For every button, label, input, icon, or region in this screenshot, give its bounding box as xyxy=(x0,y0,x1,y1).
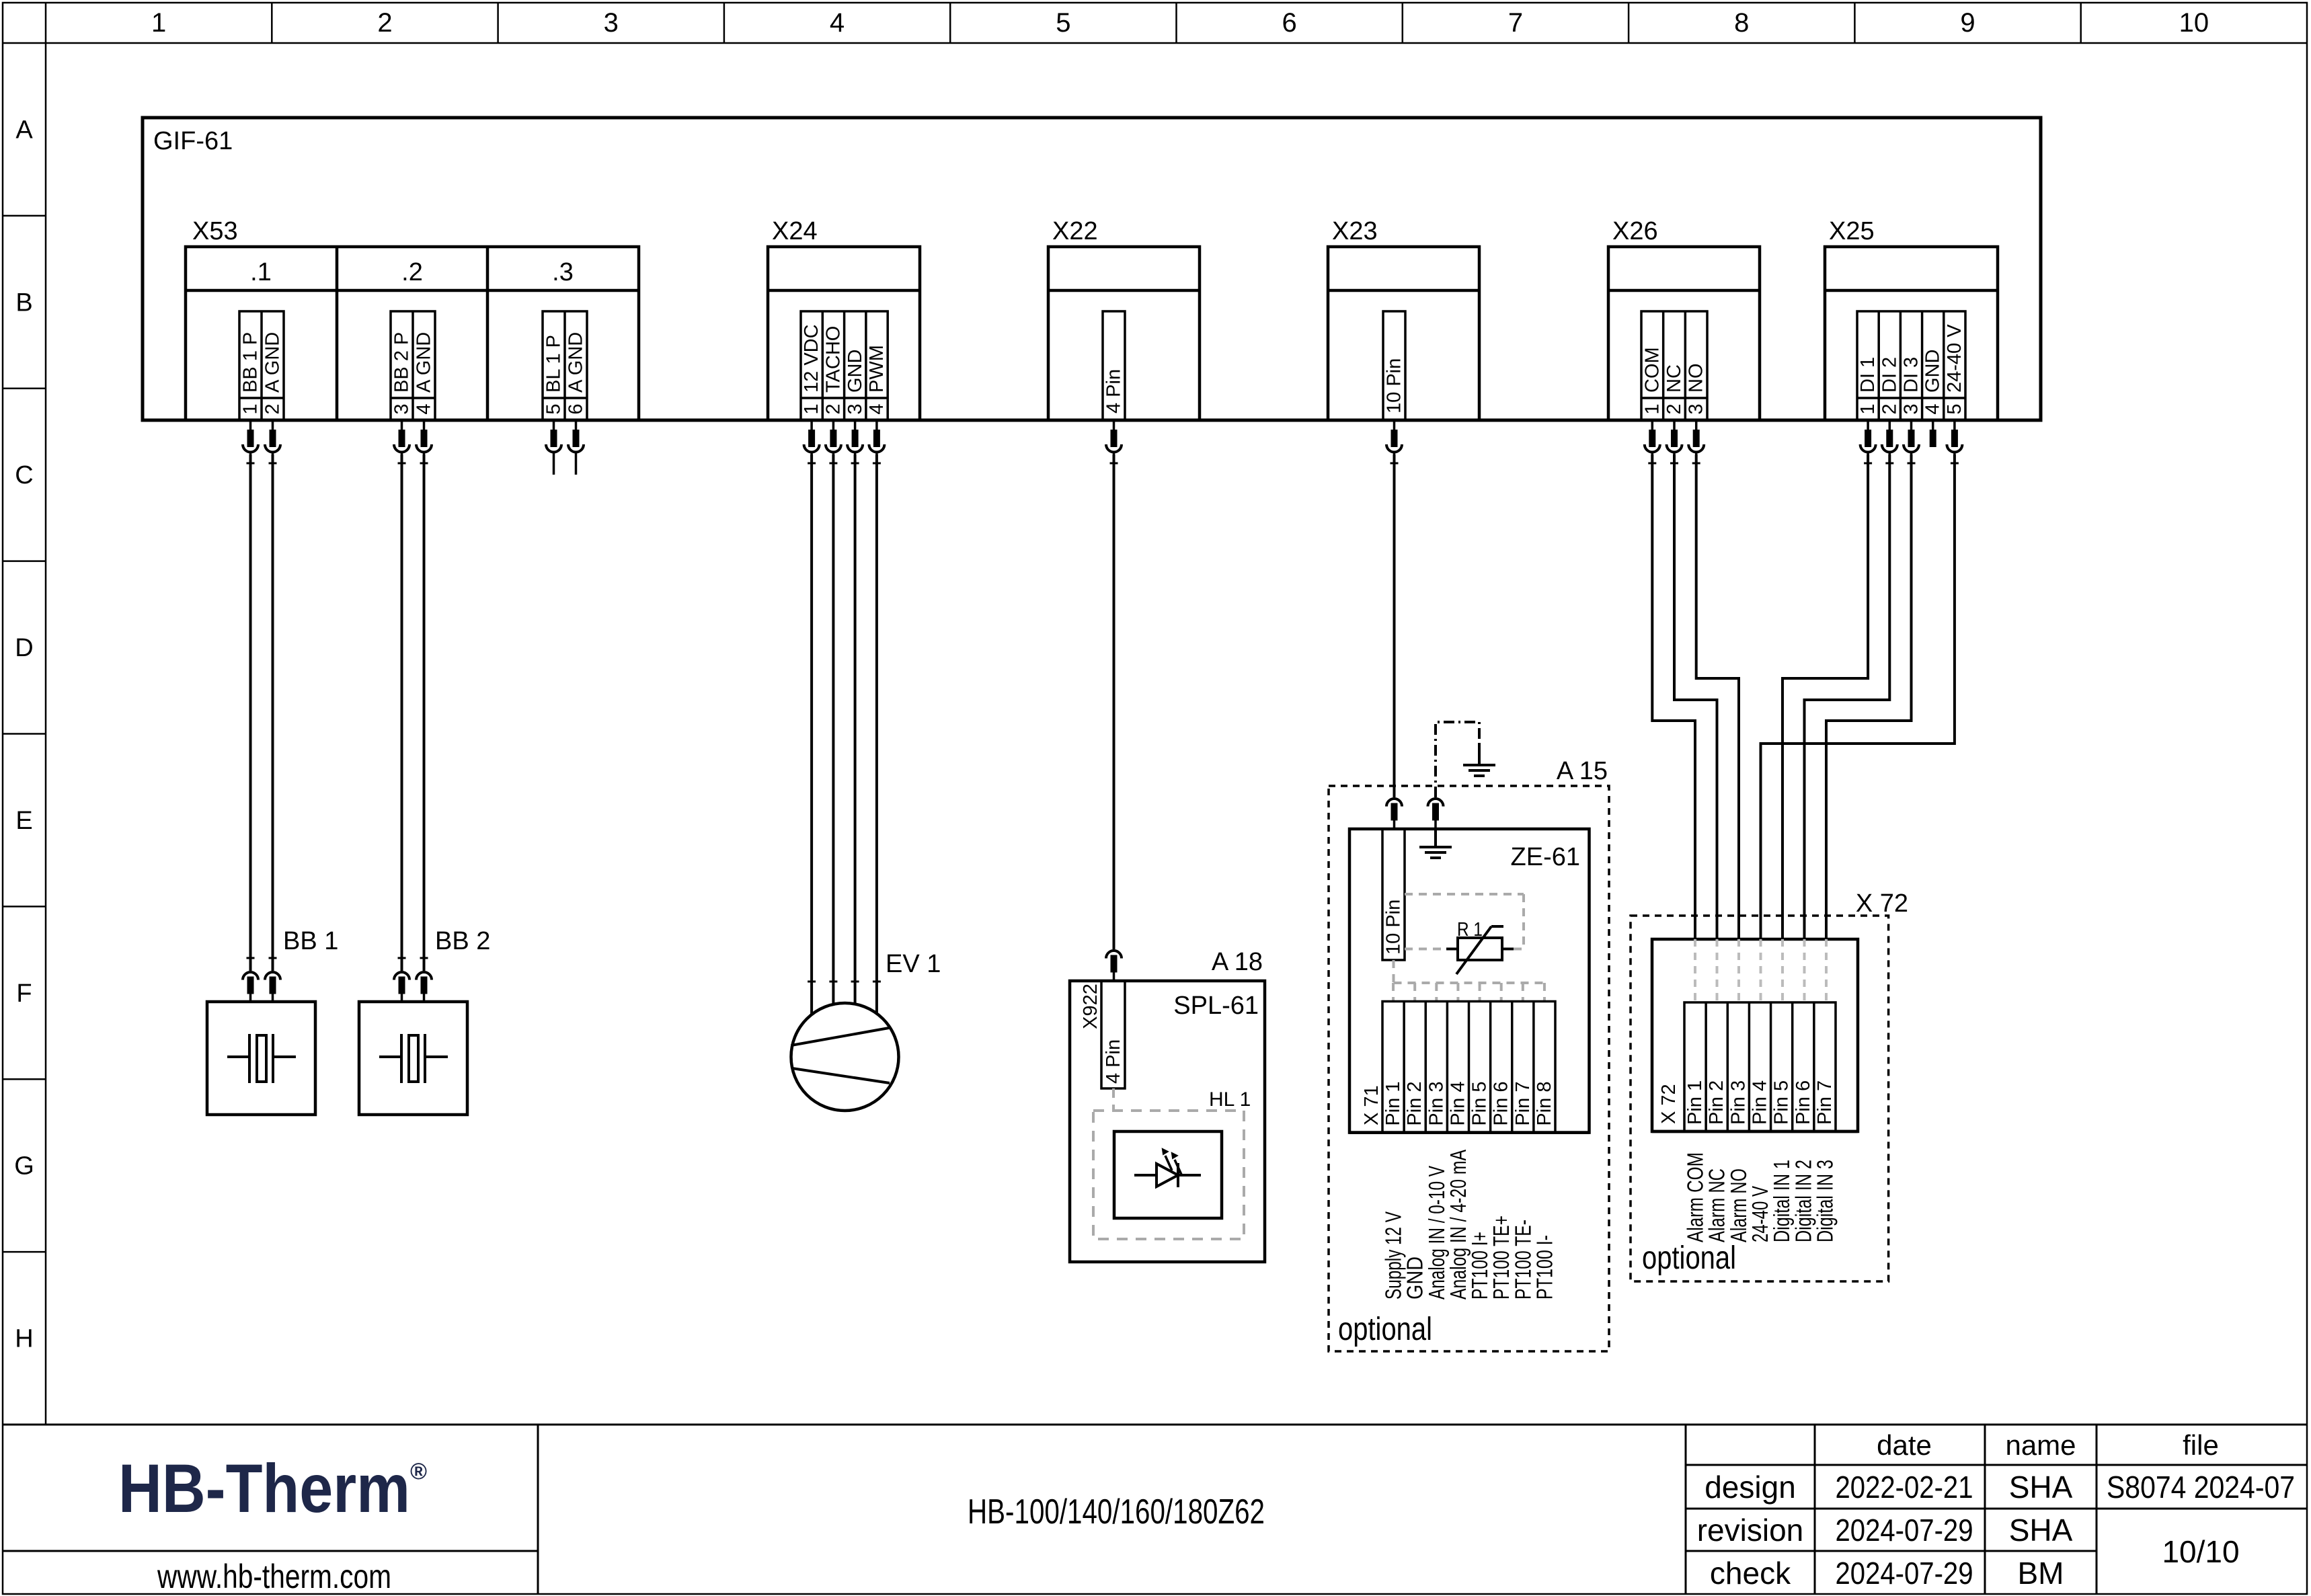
svg-text:D: D xyxy=(15,634,33,662)
svg-text:5: 5 xyxy=(1944,403,1965,414)
svg-text:2024-07-29: 2024-07-29 xyxy=(1836,1513,1973,1548)
svg-text:NO: NO xyxy=(1686,364,1707,393)
svg-text:1: 1 xyxy=(240,403,262,414)
svg-text:Pin 1: Pin 1 xyxy=(1382,1081,1404,1125)
svg-text:HL 1: HL 1 xyxy=(1209,1088,1251,1111)
svg-text:file: file xyxy=(2183,1429,2219,1461)
svg-text:X22: X22 xyxy=(1052,217,1098,245)
svg-text:.1: .1 xyxy=(250,258,272,286)
svg-text:X922: X922 xyxy=(1080,984,1101,1029)
svg-text:2022-02-21: 2022-02-21 xyxy=(1836,1470,1973,1505)
svg-text:10/10: 10/10 xyxy=(2162,1534,2239,1569)
svg-text:10: 10 xyxy=(2179,8,2209,38)
svg-text:BL 1 P: BL 1 P xyxy=(543,335,565,393)
svg-text:4: 4 xyxy=(830,8,845,38)
svg-text:DI 2: DI 2 xyxy=(1879,357,1900,393)
svg-text:TACHO: TACHO xyxy=(822,326,844,393)
svg-text:4 Pin: 4 Pin xyxy=(1103,369,1125,413)
svg-text:E: E xyxy=(15,807,32,835)
svg-text:9: 9 xyxy=(1960,8,1975,38)
svg-text:design: design xyxy=(1705,1470,1796,1505)
svg-text:Digital IN 3: Digital IN 3 xyxy=(1812,1160,1837,1242)
svg-text:Pin 3: Pin 3 xyxy=(1727,1080,1749,1125)
svg-text:2: 2 xyxy=(822,403,844,414)
svg-text:X 71: X 71 xyxy=(1361,1085,1382,1125)
svg-text:HB-100/140/160/180Z62: HB-100/140/160/180Z62 xyxy=(968,1492,1265,1531)
svg-text:GND: GND xyxy=(1922,350,1944,393)
svg-text:A 15: A 15 xyxy=(1557,757,1608,785)
svg-text:X24: X24 xyxy=(772,217,818,245)
svg-text:PWM: PWM xyxy=(866,345,888,393)
svg-text:4: 4 xyxy=(414,403,435,414)
svg-text:A GND: A GND xyxy=(565,332,587,393)
svg-text:4 Pin: 4 Pin xyxy=(1103,1039,1124,1084)
svg-text:BB 1: BB 1 xyxy=(283,927,338,955)
svg-text:®: ® xyxy=(410,1459,427,1484)
svg-text:Pin 1: Pin 1 xyxy=(1684,1080,1706,1125)
svg-text:5: 5 xyxy=(543,403,565,414)
svg-text:4: 4 xyxy=(866,403,888,414)
svg-text:Pin 4: Pin 4 xyxy=(1447,1081,1468,1125)
svg-text:X26: X26 xyxy=(1612,217,1658,245)
svg-text:6: 6 xyxy=(1282,8,1297,38)
svg-text:10 Pin: 10 Pin xyxy=(1383,900,1405,955)
svg-text:B: B xyxy=(15,288,32,317)
svg-text:optional: optional xyxy=(1338,1312,1432,1347)
svg-text:H: H xyxy=(15,1325,33,1353)
svg-text:3: 3 xyxy=(1686,403,1707,414)
svg-text:X53: X53 xyxy=(192,217,238,245)
svg-text:date: date xyxy=(1877,1429,1932,1461)
svg-text:X 72: X 72 xyxy=(1856,889,1908,918)
svg-text:BB 2 P: BB 2 P xyxy=(391,332,413,393)
svg-text:SPL-61: SPL-61 xyxy=(1173,992,1259,1020)
svg-text:COM: COM xyxy=(1641,347,1663,393)
svg-text:DI 1: DI 1 xyxy=(1857,357,1879,393)
svg-text:Pin 5: Pin 5 xyxy=(1469,1081,1491,1125)
svg-text:3: 3 xyxy=(845,403,866,414)
svg-text:name: name xyxy=(2005,1429,2076,1461)
svg-text:1: 1 xyxy=(151,8,166,38)
svg-text:Pin 2: Pin 2 xyxy=(1404,1081,1425,1125)
svg-text:PT100 I-: PT100 I- xyxy=(1532,1235,1557,1300)
svg-text:2: 2 xyxy=(1879,403,1900,414)
svg-text:7: 7 xyxy=(1508,8,1523,38)
svg-text:X25: X25 xyxy=(1829,217,1875,245)
svg-text:1: 1 xyxy=(1641,403,1663,414)
svg-text:3: 3 xyxy=(391,403,413,414)
svg-text:NC: NC xyxy=(1663,364,1685,393)
svg-text:F: F xyxy=(16,980,32,1008)
svg-text:www.hb-therm.com: www.hb-therm.com xyxy=(157,1558,391,1595)
svg-text:BB 2: BB 2 xyxy=(435,927,490,955)
svg-text:3: 3 xyxy=(604,8,619,38)
svg-text:1: 1 xyxy=(1857,403,1879,414)
svg-text:10 Pin: 10 Pin xyxy=(1384,358,1405,413)
svg-text:5: 5 xyxy=(1056,8,1070,38)
svg-text:check: check xyxy=(1710,1556,1791,1591)
svg-text:BM: BM xyxy=(2018,1556,2064,1591)
svg-text:X 72: X 72 xyxy=(1658,1084,1680,1124)
svg-text:3: 3 xyxy=(1901,403,1922,414)
svg-text:R 1: R 1 xyxy=(1457,919,1483,941)
svg-text:Pin 3: Pin 3 xyxy=(1425,1081,1447,1125)
svg-text:2024-07-29: 2024-07-29 xyxy=(1836,1556,1973,1591)
svg-text:Pin 7: Pin 7 xyxy=(1512,1081,1534,1125)
svg-text:Pin 2: Pin 2 xyxy=(1706,1080,1727,1125)
svg-text:Pin 8: Pin 8 xyxy=(1534,1081,1555,1125)
svg-text:BB 1 P: BB 1 P xyxy=(240,332,262,393)
svg-text:4: 4 xyxy=(1922,403,1944,414)
svg-text:Pin 6: Pin 6 xyxy=(1491,1081,1512,1125)
svg-text:.3: .3 xyxy=(552,258,574,286)
svg-text:1: 1 xyxy=(801,403,822,414)
svg-text:Pin 5: Pin 5 xyxy=(1771,1080,1793,1125)
svg-text:ZE-61: ZE-61 xyxy=(1511,843,1580,871)
svg-text:revision: revision xyxy=(1697,1513,1804,1548)
svg-text:optional: optional xyxy=(1642,1240,1736,1276)
svg-text:G: G xyxy=(14,1152,34,1181)
svg-text:6: 6 xyxy=(565,403,587,414)
svg-text:SHA: SHA xyxy=(2009,1513,2073,1548)
svg-text:C: C xyxy=(15,461,33,489)
svg-text:EV 1: EV 1 xyxy=(886,950,941,978)
svg-text:24-40 V: 24-40 V xyxy=(1944,324,1965,393)
svg-text:Pin 6: Pin 6 xyxy=(1793,1080,1814,1125)
svg-text:X23: X23 xyxy=(1332,217,1378,245)
svg-text:A GND: A GND xyxy=(414,332,435,393)
svg-text:GND: GND xyxy=(845,350,866,393)
svg-text:2: 2 xyxy=(262,403,284,414)
svg-text:2: 2 xyxy=(377,8,392,38)
svg-text:SHA: SHA xyxy=(2009,1470,2073,1505)
svg-text:DI 3: DI 3 xyxy=(1901,357,1922,393)
svg-text:Pin 7: Pin 7 xyxy=(1814,1080,1836,1125)
svg-text:2: 2 xyxy=(1663,403,1685,414)
svg-text:Pin 4: Pin 4 xyxy=(1749,1080,1770,1125)
svg-text:.2: .2 xyxy=(401,258,423,286)
svg-text:A: A xyxy=(15,116,33,144)
svg-text:A 18: A 18 xyxy=(1212,948,1263,976)
svg-text:HB-Therm: HB-Therm xyxy=(118,1450,410,1527)
svg-text:8: 8 xyxy=(1734,8,1749,38)
svg-text:12 VDC: 12 VDC xyxy=(801,324,822,393)
svg-text:A GND: A GND xyxy=(262,332,284,393)
svg-text:GIF-61: GIF-61 xyxy=(153,127,233,155)
svg-text:S8074 2024-07: S8074 2024-07 xyxy=(2107,1470,2295,1505)
